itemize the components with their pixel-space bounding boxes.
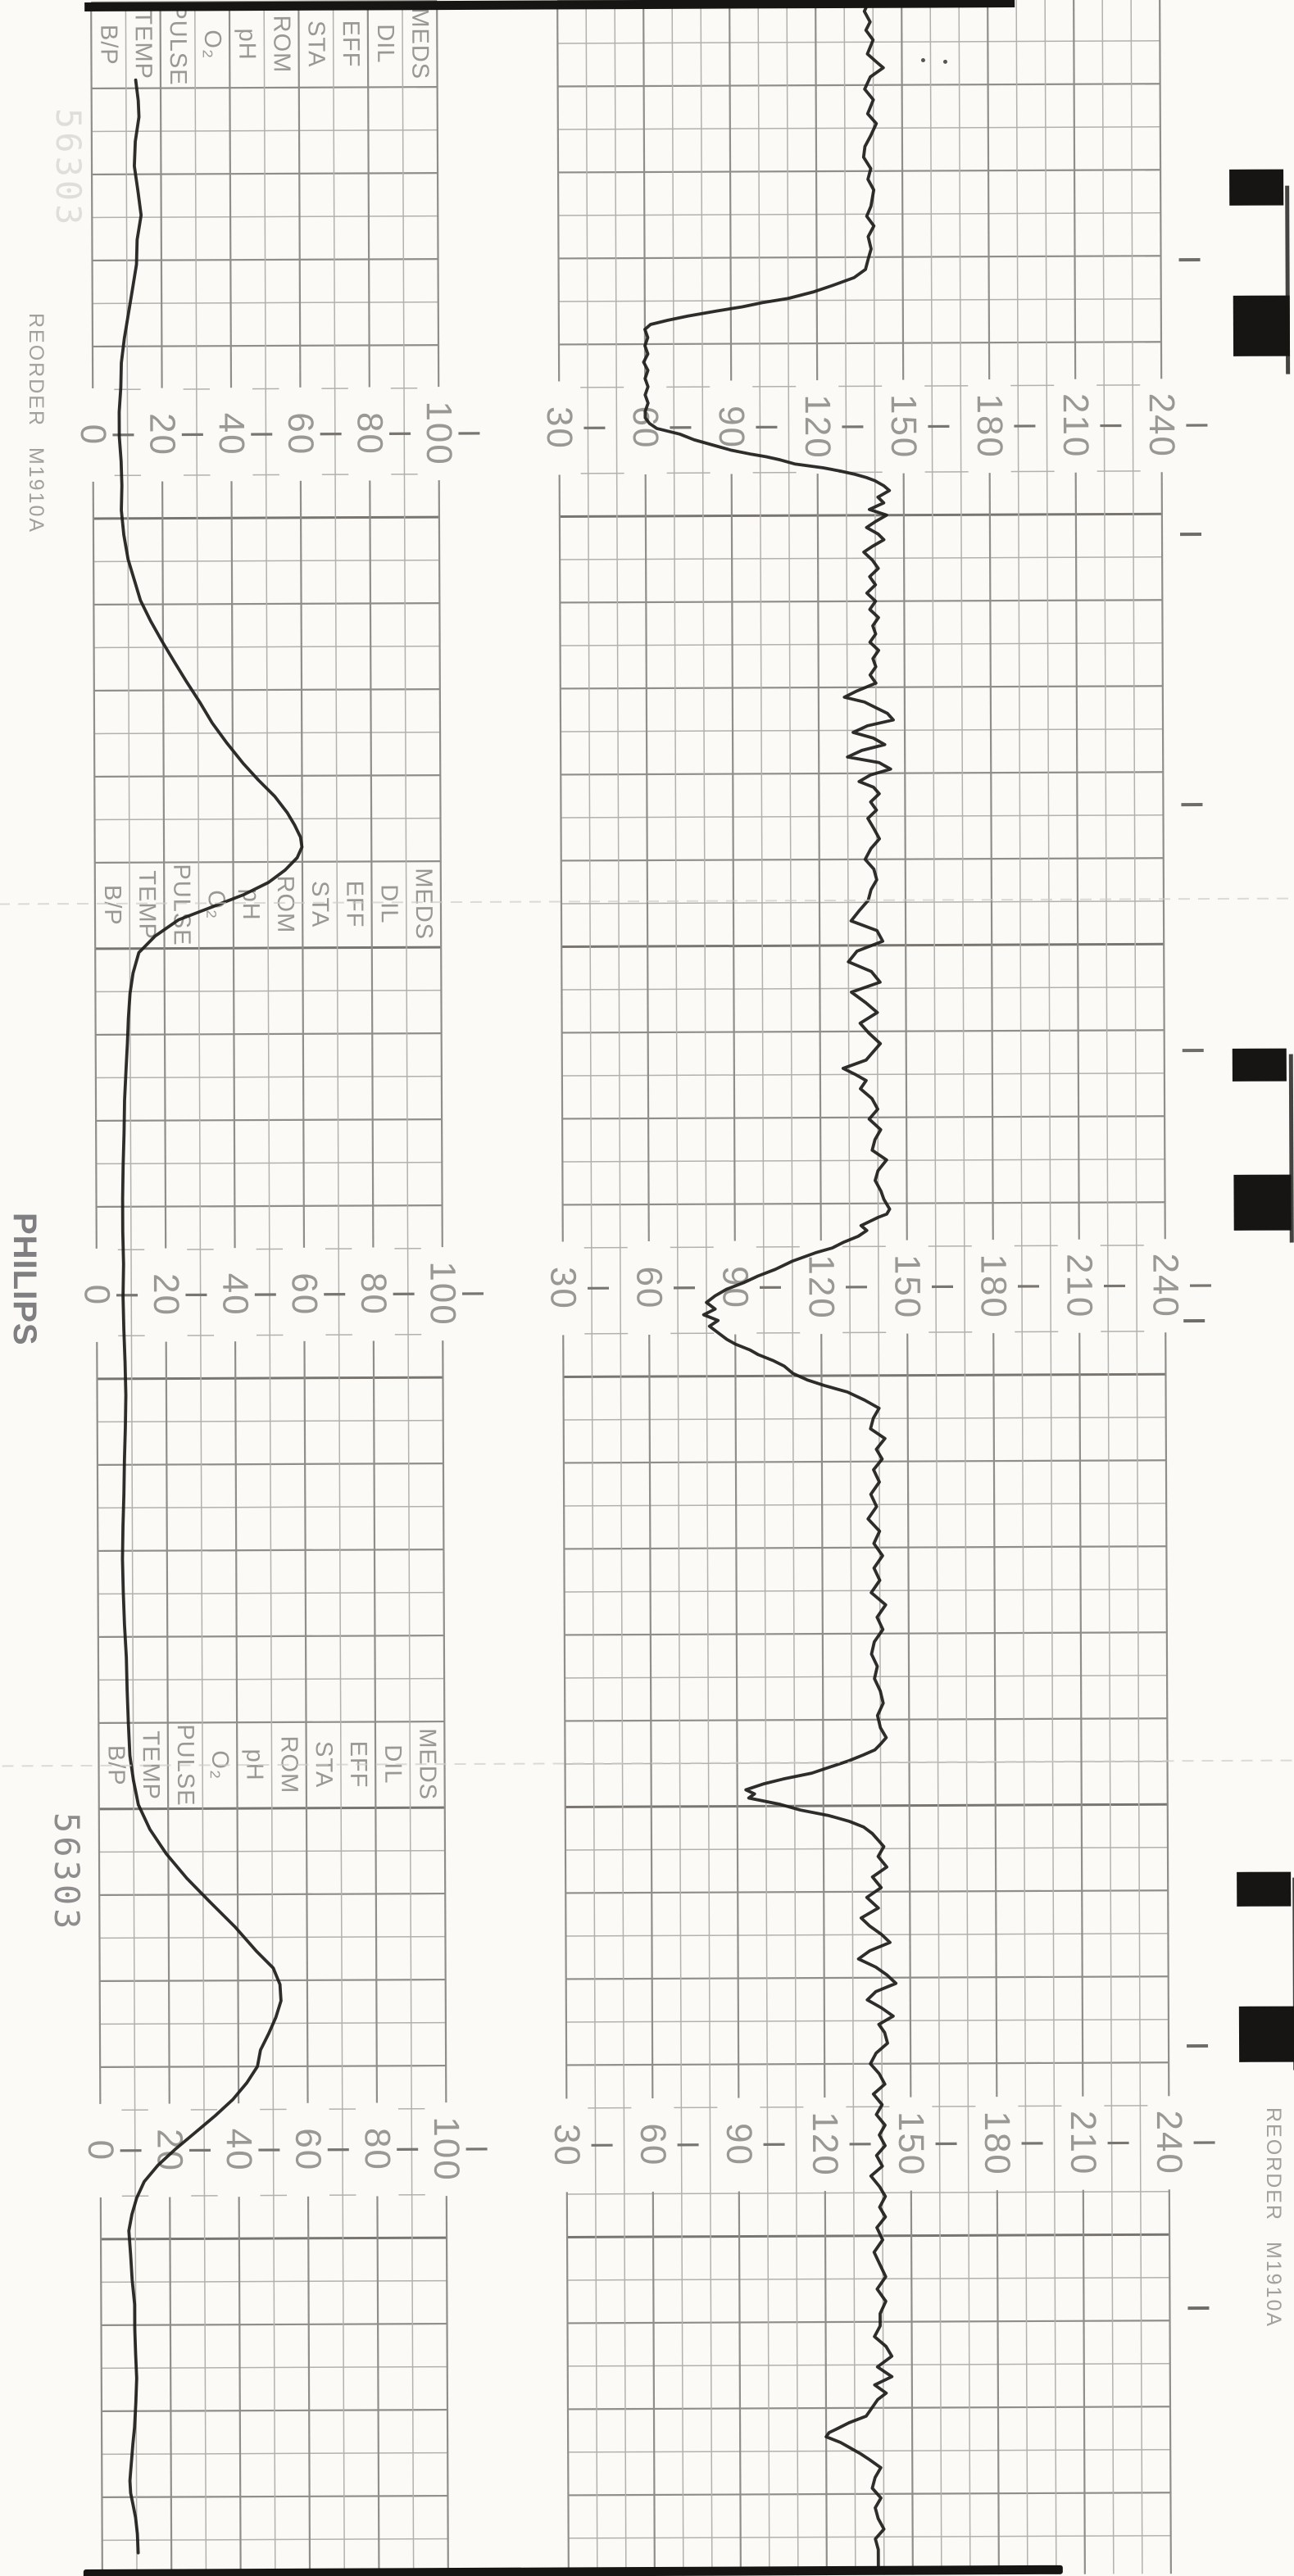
scale-label: 30 [547,2124,587,2167]
scale-label: 60 [629,1266,669,1309]
reorder-text-left: REORDER M1910A [25,313,46,533]
column-label-temp: TEMP [129,10,156,79]
scale-label: 20 [142,413,182,456]
ctg-strip-chart: 0204060801000204060801000204060801003060… [0,0,1294,2576]
scale-label: 150 [883,394,924,460]
scale-label: 150 [891,2111,931,2177]
scale-label: 180 [973,1254,1013,1319]
philips-logo: PHILIPS [8,1213,41,1346]
scale-label: 20 [146,1273,186,1317]
column-label-rom: ROM [272,876,298,934]
scale-label: 80 [349,412,389,456]
edge-registration-block [1233,296,1290,356]
bottom-edge-bar [84,2565,1063,2576]
edge-registration-block [1233,1049,1287,1082]
column-label-sta: STA [303,20,329,67]
scale-label: 120 [797,394,838,460]
scale-label: 120 [805,2111,845,2177]
scale-label: 90 [719,2123,759,2166]
scale-label: 60 [280,412,320,456]
edge-registration-block [1233,1175,1291,1231]
lot-number-stamp: 56303 [49,1812,84,1932]
column-label-bp: B/P [95,25,121,66]
scale-label: 80 [357,2128,397,2171]
column-label-rom: ROM [268,16,294,74]
ctg-strip-paper: 0204060801000204060801000204060801003060… [0,0,1294,2576]
edge-registration-block [1229,170,1283,206]
scan-speck [943,60,947,64]
column-label-sta: STA [306,881,333,927]
strip-content: 0204060801000204060801000204060801003060… [0,0,1294,2576]
scale-label: 100 [419,401,459,466]
scan-speck [921,58,925,62]
scale-label: 80 [353,1272,393,1316]
scale-label: 30 [539,406,579,450]
column-label-meds: MEDS [411,868,437,940]
column-label-pulse: PULSE [165,3,191,85]
column-label-temp: TEMP [134,870,160,940]
scale-label: 180 [969,393,1010,459]
column-label-o: O₂ [199,29,225,59]
scale-label: 180 [977,2111,1017,2176]
scale-label: 30 [543,1267,583,1310]
scale-label: 40 [211,413,252,456]
scale-label: 210 [1063,2111,1103,2176]
scale-label: 210 [1056,393,1096,459]
column-label-eff: EFF [341,881,367,928]
scale-label: 40 [219,2129,259,2172]
scale-label: 20 [149,2129,189,2172]
scale-label: 90 [711,406,751,449]
scale-label: 210 [1059,1254,1099,1319]
edge-registration-block [1237,1872,1291,1907]
scale-label: 60 [288,2128,328,2171]
column-label-ph: pH [238,888,264,920]
column-label-eff: EFF [338,20,364,68]
scale-label: 0 [80,2140,120,2162]
edge-registration-block [1239,2007,1294,2062]
column-label-meds: MEDS [406,7,433,79]
scale-label: 40 [215,1273,255,1317]
column-label-dil: DIL [372,24,398,63]
scale-label: 240 [1145,1253,1185,1318]
scale-label: 120 [801,1254,841,1320]
column-label-ph: pH [234,29,260,61]
column-label-dil: DIL [376,884,402,923]
scale-label: 150 [887,1254,927,1320]
column-label-pulse: PULSE [168,864,194,946]
scale-label: 60 [284,1272,325,1316]
edge-sliver [1289,1054,1294,1243]
scale-label: 60 [633,2123,673,2166]
scale-label: 240 [1142,392,1182,458]
column-label-bp: B/P [99,885,125,926]
scale-labels: 0204060801000204060801000204060801003060… [71,379,1215,2197]
scale-label: 100 [426,2116,466,2182]
scale-label: 100 [422,1261,462,1327]
edge-sliver [1285,186,1290,374]
scale-label: 0 [76,1285,116,1307]
faint-lot-number-stamp: 56303 [51,108,85,228]
scale-label: 240 [1149,2110,1189,2175]
scale-label: 0 [73,424,113,447]
reorder-text-right: REORDER M1910A [1263,2107,1283,2328]
